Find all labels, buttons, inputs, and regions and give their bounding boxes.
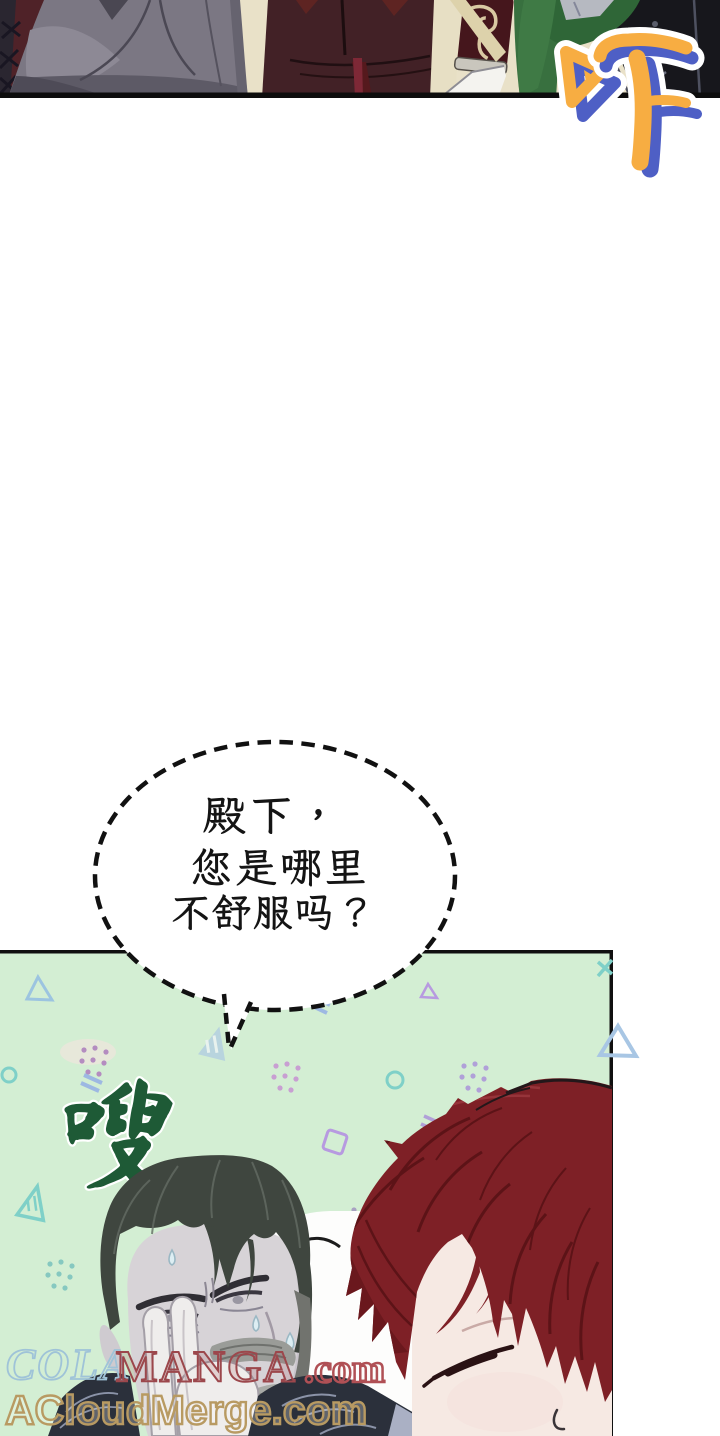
svg-text:ACloudMerge.com: ACloudMerge.com [5, 1387, 367, 1433]
svg-text:MANGA: MANGA [116, 1342, 297, 1391]
svg-text:.com: .com [304, 1346, 385, 1391]
svg-text:COLA: COLA [6, 1340, 131, 1389]
